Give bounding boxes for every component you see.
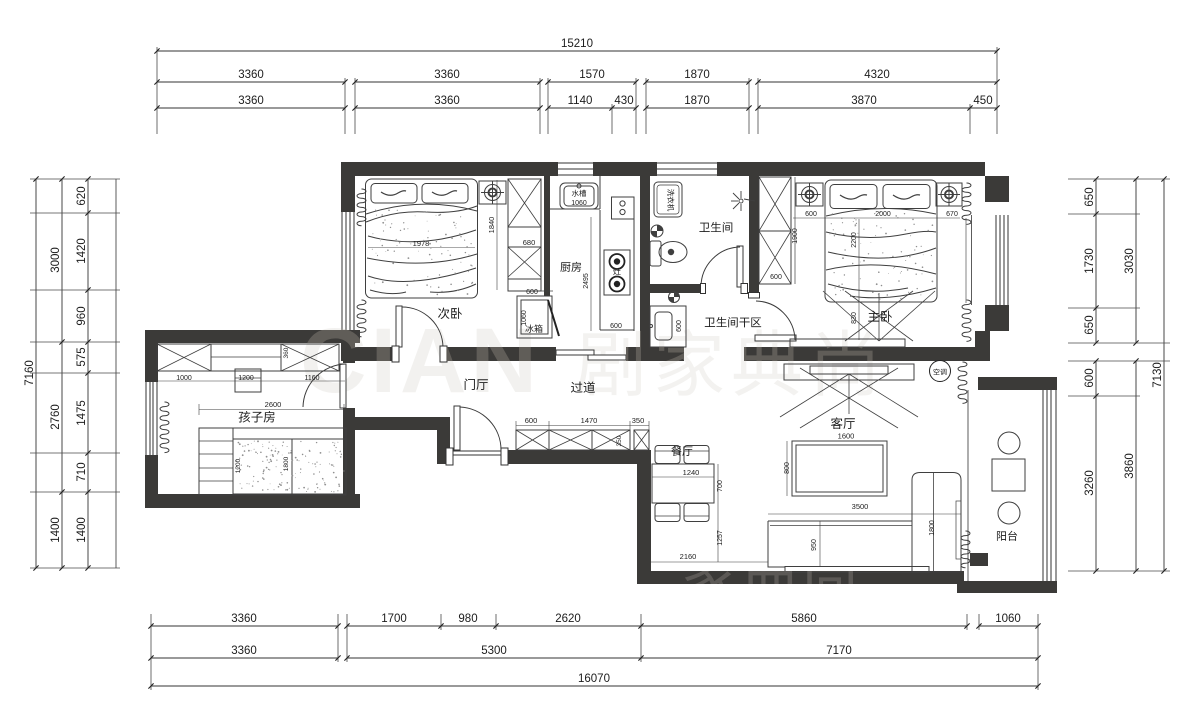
svg-text:1420: 1420 [76,238,88,264]
svg-text:1870: 1870 [684,95,710,107]
svg-text:600: 600 [805,211,817,218]
svg-text:650: 650 [1084,187,1096,206]
svg-text:2200: 2200 [851,232,858,248]
svg-text:1060: 1060 [571,200,587,207]
svg-text:2160: 2160 [680,552,697,561]
svg-text:3360: 3360 [238,95,264,107]
svg-text:1470: 1470 [581,416,598,425]
svg-text:3860: 3860 [1124,453,1136,479]
svg-text:350: 350 [632,416,645,425]
svg-text:1900: 1900 [792,228,799,244]
svg-text:710: 710 [76,462,88,481]
svg-text:830: 830 [851,312,858,324]
svg-text:7170: 7170 [826,645,852,657]
svg-text:3360: 3360 [434,69,460,81]
svg-text:1840: 1840 [487,217,496,234]
svg-text:680: 680 [523,238,536,247]
svg-text:1570: 1570 [579,69,605,81]
svg-text:1475: 1475 [76,400,88,426]
svg-text:5860: 5860 [791,613,817,625]
svg-text:575: 575 [76,347,88,366]
svg-text:2600: 2600 [265,400,282,409]
svg-text:1257: 1257 [717,530,724,546]
svg-text:3360: 3360 [231,645,257,657]
svg-text:1870: 1870 [684,69,710,81]
svg-text:1978: 1978 [413,239,430,248]
svg-text:7160: 7160 [24,360,36,386]
svg-text:4320: 4320 [864,69,890,81]
svg-text:1400: 1400 [50,517,62,543]
svg-text:3360: 3360 [231,613,257,625]
svg-text:3030: 3030 [1124,248,1136,274]
svg-text:600: 600 [610,323,622,330]
svg-text:700: 700 [717,480,724,492]
svg-text:600: 600 [1084,368,1096,387]
svg-text:1800: 1800 [283,456,290,471]
svg-text:960: 960 [76,306,88,325]
svg-text:3870: 3870 [851,95,877,107]
svg-text:980: 980 [458,613,477,625]
svg-text:450: 450 [973,95,992,107]
svg-text:620: 620 [76,186,88,205]
svg-text:1600: 1600 [838,432,855,441]
svg-text:1700: 1700 [381,613,407,625]
svg-text:15210: 15210 [561,38,593,50]
svg-text:1240: 1240 [683,468,700,477]
svg-text:7130: 7130 [1152,362,1164,388]
svg-text:1160: 1160 [304,375,319,382]
svg-text:1400: 1400 [76,517,88,543]
svg-text:5300: 5300 [481,645,507,657]
svg-text:1000: 1000 [176,375,192,382]
svg-text:600: 600 [526,289,538,296]
svg-text:600: 600 [525,416,538,425]
svg-text:3500: 3500 [852,502,869,511]
svg-text:2000: 2000 [875,211,891,218]
svg-text:2495: 2495 [583,273,590,289]
svg-text:800: 800 [784,462,791,474]
svg-text:600: 600 [676,320,683,332]
svg-text:1800: 1800 [929,520,936,536]
svg-text:3360: 3360 [238,69,264,81]
svg-text:1140: 1140 [568,95,593,107]
svg-text:950: 950 [811,539,818,551]
svg-text:1200: 1200 [238,375,254,382]
svg-text:1060: 1060 [995,613,1021,625]
svg-text:1200: 1200 [235,458,242,473]
svg-text:3000: 3000 [50,247,62,273]
svg-text:350: 350 [616,435,623,446]
svg-text:430: 430 [614,95,633,107]
svg-text:16070: 16070 [578,673,610,685]
svg-text:3260: 3260 [1084,470,1096,496]
svg-text:360: 360 [283,347,290,358]
svg-text:3360: 3360 [434,95,460,107]
svg-text:2620: 2620 [555,613,581,625]
svg-text:1730: 1730 [1084,248,1096,274]
svg-text:650: 650 [1084,315,1096,334]
svg-text:1060: 1060 [521,310,528,326]
svg-text:2760: 2760 [50,404,62,430]
svg-text:600: 600 [770,274,782,281]
svg-text:670: 670 [946,211,958,218]
